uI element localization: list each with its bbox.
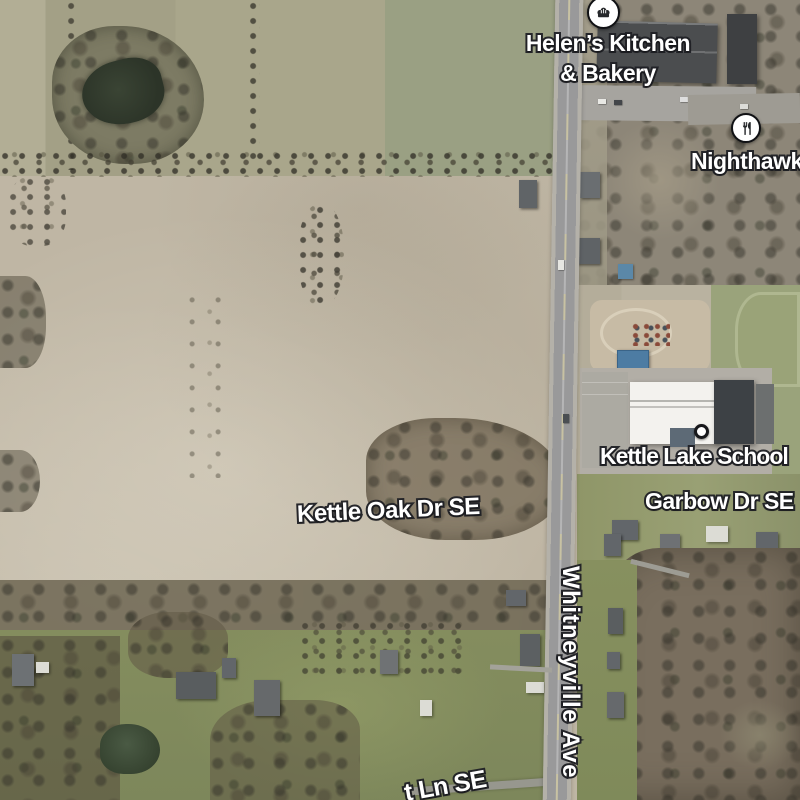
building (706, 526, 728, 542)
building (520, 634, 540, 666)
poi-label-nighthawk[interactable]: Nighthawk (691, 148, 800, 175)
tree-cluster (128, 612, 228, 678)
building (380, 650, 398, 674)
building (420, 700, 432, 716)
playground-equipment (630, 322, 670, 346)
car (740, 104, 748, 109)
car (563, 414, 569, 423)
building (12, 654, 34, 686)
building (618, 264, 633, 279)
car (558, 260, 564, 270)
tree-cluster (298, 204, 344, 306)
hedgerow (248, 0, 260, 162)
poi-label-kettle-lake-school[interactable]: Kettle Lake School (600, 443, 788, 470)
bakery-glyph (594, 3, 613, 22)
tree-cluster (8, 176, 66, 246)
street-label-garbow: Garbow Dr SE (645, 488, 794, 515)
restaurant-icon[interactable] (731, 113, 761, 143)
building (222, 658, 236, 678)
building (604, 534, 621, 556)
treeline (0, 150, 560, 177)
building (607, 692, 624, 718)
pond-south (100, 724, 160, 774)
building (506, 590, 526, 606)
residential-east-road (577, 560, 637, 800)
building (254, 680, 280, 716)
building (176, 672, 216, 699)
building (519, 180, 537, 208)
building (526, 682, 544, 693)
building (607, 652, 620, 669)
building (608, 608, 623, 634)
tree-cluster (210, 700, 360, 800)
building (576, 238, 600, 264)
woods-clearing (720, 700, 800, 770)
street-label-whitneyville: Whitneyville Ave (556, 566, 584, 779)
school-poi-dot[interactable] (694, 424, 709, 439)
building (580, 172, 600, 198)
car (598, 99, 606, 104)
clearing (600, 120, 720, 240)
satellite-map[interactable]: Helen’s Kitchen & Bakery Nighthawk Kettl… (0, 0, 800, 800)
poi-label-helens-kitchen[interactable]: Helen’s Kitchen & Bakery (508, 28, 708, 88)
tree-trail (183, 290, 238, 478)
tree-cluster (0, 450, 40, 512)
car (614, 100, 622, 105)
helens-line2: & Bakery (508, 58, 708, 88)
helens-line1: Helen’s Kitchen (508, 28, 708, 58)
fork-knife-glyph (738, 120, 755, 137)
building (36, 662, 49, 673)
school-building-dark-wing (714, 380, 754, 444)
bakery-building-wing (727, 14, 757, 84)
tree-cluster (0, 276, 46, 368)
school-parking-east (756, 384, 774, 444)
